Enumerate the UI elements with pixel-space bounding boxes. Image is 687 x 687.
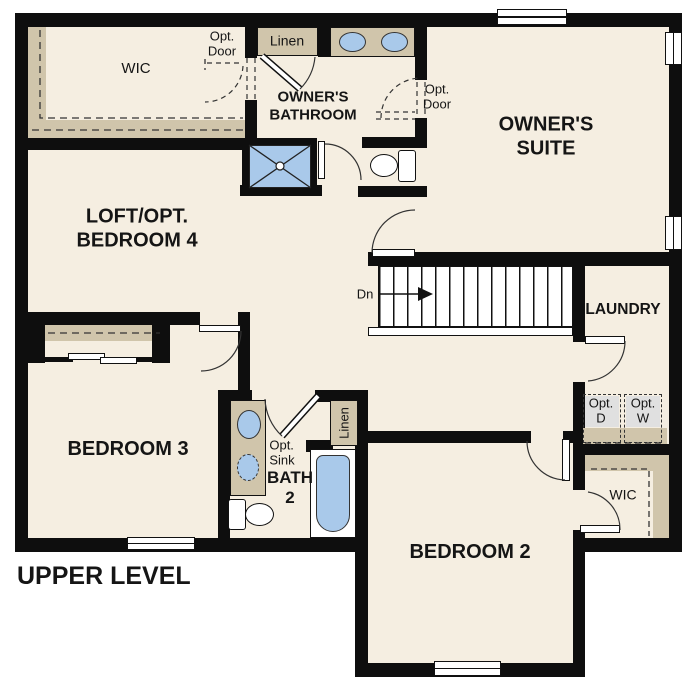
door-leaf-laundry bbox=[585, 336, 625, 344]
room-label-loft: LOFT/OPT. BEDROOM 4 bbox=[76, 205, 197, 252]
wall bbox=[362, 137, 427, 148]
annotation-opt-sink: Opt. Sink bbox=[269, 438, 294, 469]
room-label-laundry: LAUNDRY bbox=[585, 301, 660, 319]
annotation-opt-door-suite: Opt. Door bbox=[423, 82, 451, 113]
toilet bbox=[370, 154, 398, 177]
window bbox=[665, 216, 682, 250]
wall bbox=[15, 312, 200, 325]
toilet-tank bbox=[228, 499, 246, 530]
wall bbox=[415, 27, 427, 80]
annotation-stairs-down: Dn bbox=[357, 286, 374, 301]
wall bbox=[15, 13, 28, 552]
bath2-sink bbox=[237, 410, 261, 439]
closet-label-linen-bath: Linen bbox=[336, 407, 351, 439]
vanity-sink bbox=[339, 32, 366, 52]
room-label-owners-bathroom: OWNER'S BATHROOM bbox=[269, 88, 356, 123]
room-label-bath2: BATH 2 bbox=[267, 468, 313, 508]
plan-title: UPPER LEVEL bbox=[17, 562, 191, 592]
wall bbox=[669, 13, 682, 552]
wall bbox=[152, 325, 170, 363]
stairs bbox=[378, 266, 573, 327]
room-label-owners-suite: OWNER'S SUITE bbox=[499, 113, 594, 160]
door-leaf-owners-toilet bbox=[318, 141, 325, 179]
wall bbox=[355, 431, 531, 443]
wic-shelf bbox=[653, 455, 669, 538]
vanity-sink bbox=[381, 32, 408, 52]
closet-bypass-door bbox=[100, 357, 137, 364]
wall bbox=[28, 325, 45, 363]
bathtub bbox=[316, 455, 350, 532]
door-leaf-bedroom2 bbox=[562, 439, 570, 481]
wall bbox=[15, 13, 682, 27]
room-label-wic-bedroom2: WIC bbox=[609, 487, 636, 504]
wall bbox=[368, 252, 682, 266]
wall bbox=[245, 13, 257, 58]
wall bbox=[358, 186, 427, 197]
shower bbox=[249, 145, 311, 188]
annotation-opt-washer: Opt. W bbox=[631, 396, 656, 427]
optional-sink bbox=[237, 454, 259, 481]
door-leaf-bedroom3 bbox=[199, 325, 241, 332]
wall bbox=[15, 138, 257, 150]
window bbox=[127, 537, 195, 550]
closet-shelf bbox=[45, 325, 152, 341]
door-leaf-owners-suite bbox=[372, 249, 415, 257]
closet-label-linen-hall: Linen bbox=[270, 33, 304, 50]
room-label-bedroom2: BEDROOM 2 bbox=[409, 541, 530, 565]
floor-plan: WIC Linen Opt. Door OWNER'S BATHROOM Opt… bbox=[0, 0, 687, 687]
wall bbox=[573, 538, 682, 552]
window bbox=[665, 32, 682, 65]
wall bbox=[318, 27, 330, 57]
wall bbox=[573, 530, 585, 677]
annotation-opt-door-wic: Opt. Door bbox=[208, 29, 236, 60]
room-label-bedroom3: BEDROOM 3 bbox=[67, 438, 188, 462]
room-label-wic-owners: WIC bbox=[121, 60, 150, 78]
toilet-tank bbox=[398, 150, 416, 182]
window bbox=[497, 9, 567, 25]
annotation-opt-dryer: Opt. D bbox=[589, 396, 614, 427]
stair-rail bbox=[368, 327, 573, 336]
wic-shelf bbox=[28, 120, 245, 138]
door-leaf-wic2 bbox=[580, 525, 620, 533]
window bbox=[434, 661, 501, 676]
